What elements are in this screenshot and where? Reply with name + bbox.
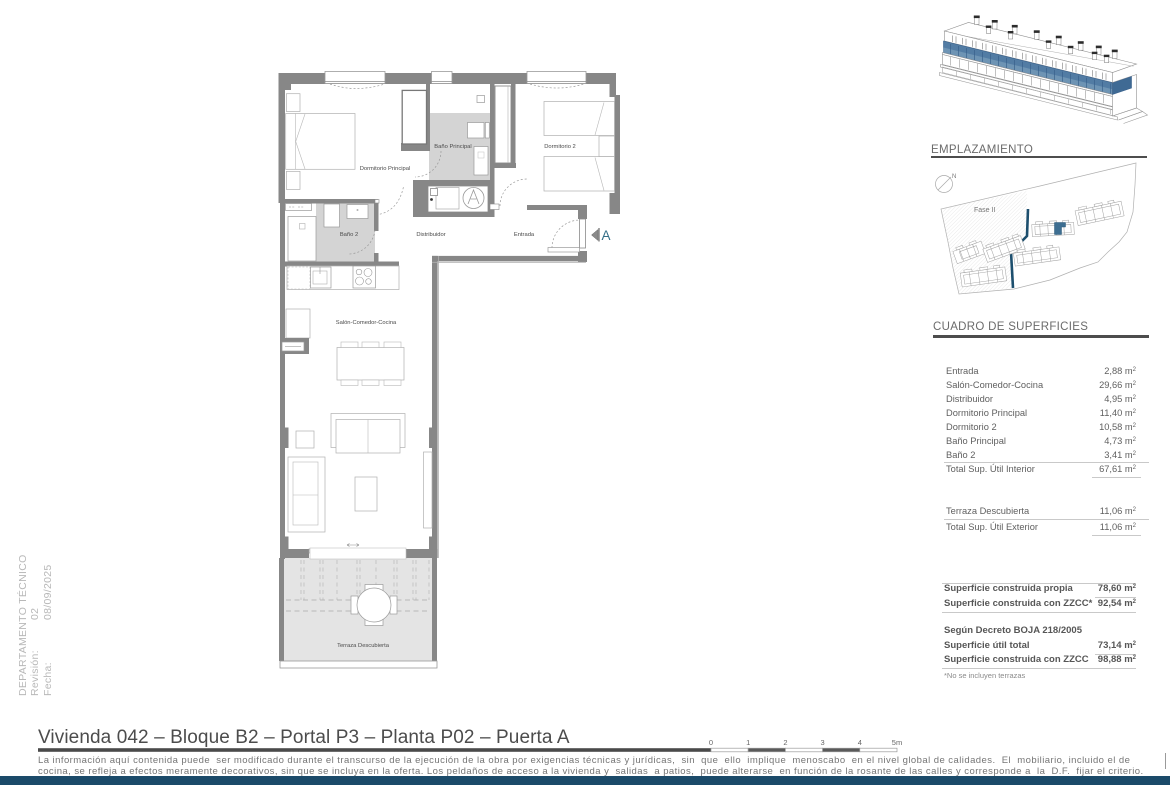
svg-text:Distribuidor: Distribuidor bbox=[416, 232, 445, 238]
svg-text:5m: 5m bbox=[892, 738, 902, 747]
svg-text:Baño 2: Baño 2 bbox=[340, 232, 358, 238]
svg-text:Dormitorio Principal: Dormitorio Principal bbox=[360, 166, 411, 172]
svg-text:Salón-Comedor-Cocina: Salón-Comedor-Cocina bbox=[336, 320, 397, 326]
svg-text:1: 1 bbox=[746, 738, 750, 747]
svg-text:Fase II: Fase II bbox=[974, 207, 995, 214]
svg-text:2: 2 bbox=[783, 738, 787, 747]
svg-text:Terraza Descubierta: Terraza Descubierta bbox=[337, 643, 390, 649]
svg-text:0: 0 bbox=[709, 738, 713, 747]
svg-text:Dormitorio 2: Dormitorio 2 bbox=[544, 144, 576, 150]
svg-text:N: N bbox=[952, 174, 956, 180]
svg-text:Baño Principal: Baño Principal bbox=[434, 144, 471, 150]
svg-text:Entrada: Entrada bbox=[514, 232, 535, 238]
svg-text:4: 4 bbox=[858, 738, 862, 747]
svg-text:3: 3 bbox=[821, 738, 825, 747]
svg-text:A: A bbox=[602, 228, 611, 243]
